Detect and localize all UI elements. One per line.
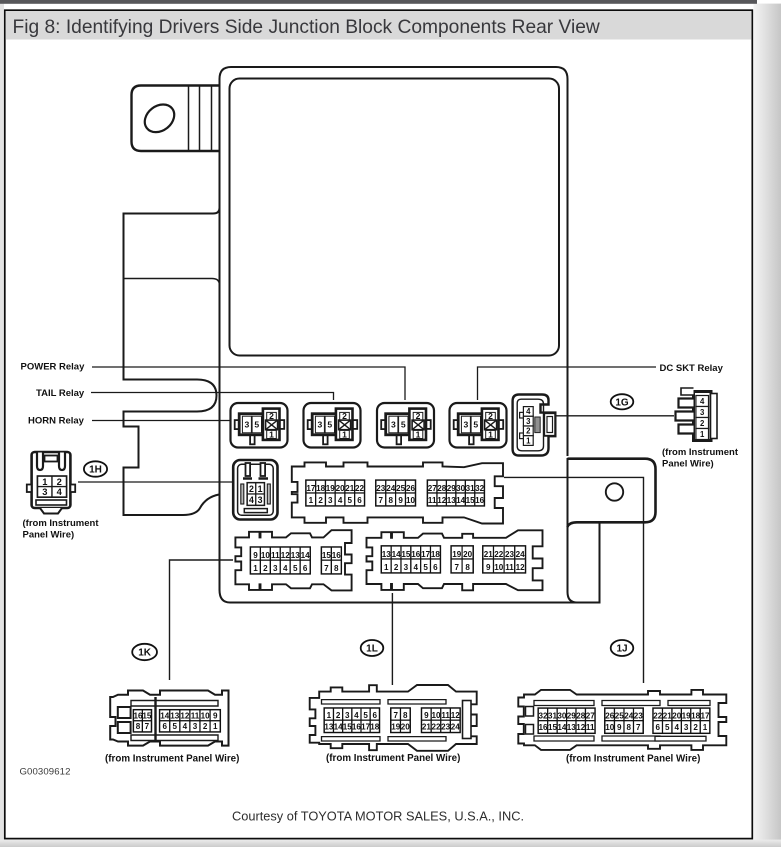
svg-text:32: 32 [538,712,548,721]
svg-text:14: 14 [557,723,567,732]
svg-text:2: 2 [693,723,698,732]
svg-text:10: 10 [605,723,615,732]
svg-text:Panel Wire): Panel Wire) [662,459,714,470]
svg-text:4: 4 [674,723,679,732]
svg-text:9: 9 [486,563,491,572]
svg-text:27: 27 [586,712,596,721]
svg-text:1: 1 [327,711,332,720]
svg-text:8: 8 [334,564,339,573]
svg-text:14: 14 [334,722,344,731]
svg-text:2: 2 [203,722,208,731]
svg-text:8: 8 [136,722,141,731]
svg-text:21: 21 [663,712,673,721]
svg-text:3: 3 [318,420,323,430]
svg-text:6: 6 [433,563,438,572]
svg-text:25: 25 [396,484,406,493]
svg-text:G00309612: G00309612 [20,766,71,777]
svg-text:10: 10 [431,711,441,720]
svg-text:2: 2 [57,476,62,487]
svg-text:23: 23 [634,712,644,721]
svg-text:13: 13 [291,551,301,560]
svg-text:2: 2 [269,411,274,421]
svg-text:Courtesy of TOYOTA MOTOR SALES: Courtesy of TOYOTA MOTOR SALES, U.S.A., … [232,809,524,824]
svg-text:18: 18 [431,550,441,559]
svg-text:26: 26 [406,484,416,493]
svg-text:4: 4 [700,397,705,406]
svg-text:Panel Wire): Panel Wire) [23,530,75,541]
svg-text:5: 5 [348,496,353,505]
svg-text:12: 12 [437,496,447,505]
svg-text:14: 14 [301,551,311,560]
svg-text:24: 24 [516,550,526,559]
svg-text:9: 9 [213,712,218,721]
svg-text:3: 3 [273,564,278,573]
svg-text:15: 15 [401,550,411,559]
svg-text:(from Instrument Panel Wire): (from Instrument Panel Wire) [326,753,460,764]
svg-text:6: 6 [357,496,362,505]
svg-text:2: 2 [394,563,399,572]
svg-text:3: 3 [193,722,198,731]
svg-text:3: 3 [684,723,689,732]
svg-text:2: 2 [416,411,421,421]
svg-text:18: 18 [691,712,701,721]
svg-text:2: 2 [488,411,493,421]
svg-text:1G: 1G [615,397,629,408]
svg-text:12: 12 [576,723,586,732]
svg-text:22: 22 [653,712,663,721]
svg-text:4: 4 [249,495,254,505]
svg-text:1L: 1L [366,644,378,655]
svg-text:22: 22 [431,722,441,731]
svg-text:26: 26 [605,712,615,721]
svg-text:3: 3 [345,711,350,720]
svg-text:10: 10 [494,563,504,572]
svg-text:1: 1 [253,564,258,573]
svg-text:24: 24 [386,484,396,493]
svg-text:HORN Relay: HORN Relay [28,416,85,427]
svg-text:21: 21 [484,550,494,559]
svg-text:28: 28 [437,484,447,493]
svg-text:(from Instrument Panel Wire): (from Instrument Panel Wire) [105,754,239,765]
svg-text:1: 1 [342,429,347,439]
svg-text:24: 24 [451,722,461,731]
svg-text:2: 2 [342,411,347,421]
svg-text:6: 6 [656,723,661,732]
svg-text:3: 3 [328,496,333,505]
svg-text:6: 6 [373,711,378,720]
svg-text:16: 16 [352,722,362,731]
svg-text:DC SKT Relay: DC SKT Relay [660,363,724,374]
svg-text:16: 16 [538,723,548,732]
svg-text:15: 15 [548,723,558,732]
svg-text:13: 13 [170,712,180,721]
svg-text:15: 15 [142,712,152,721]
svg-text:31: 31 [466,484,476,493]
svg-text:7: 7 [393,711,398,720]
svg-text:3: 3 [404,563,409,572]
svg-text:2: 2 [249,484,254,494]
svg-text:11: 11 [505,563,514,572]
svg-text:14: 14 [392,550,402,559]
svg-text:19: 19 [391,722,401,731]
svg-text:Fig 8: Identifying Drivers Sid: Fig 8: Identifying Drivers Side Junction… [13,17,600,38]
svg-text:9: 9 [617,723,622,732]
svg-text:30: 30 [456,484,466,493]
svg-text:13: 13 [324,722,334,731]
svg-text:8: 8 [403,711,408,720]
svg-text:1: 1 [416,429,421,439]
svg-text:22: 22 [355,484,365,493]
svg-text:15: 15 [322,551,332,560]
svg-text:11: 11 [586,723,595,732]
svg-text:2: 2 [318,496,323,505]
svg-text:3: 3 [258,495,263,505]
svg-text:14: 14 [160,712,170,721]
svg-text:2: 2 [336,711,341,720]
svg-text:3: 3 [42,486,47,497]
svg-text:29: 29 [567,712,577,721]
svg-text:31: 31 [548,712,558,721]
svg-text:3: 3 [700,408,705,417]
svg-text:17: 17 [700,712,710,721]
svg-text:23: 23 [441,722,451,731]
svg-text:11: 11 [271,551,280,560]
svg-text:(from Instrument: (from Instrument [23,518,100,529]
svg-text:1: 1 [703,723,708,732]
svg-text:7: 7 [379,496,384,505]
svg-text:23: 23 [376,484,386,493]
svg-text:12: 12 [516,563,526,572]
svg-text:1H: 1H [89,465,102,476]
svg-text:7: 7 [324,564,329,573]
svg-text:2: 2 [526,427,531,436]
svg-text:7: 7 [454,563,459,572]
svg-text:5: 5 [293,564,298,573]
svg-text:4: 4 [183,722,188,731]
svg-text:5: 5 [423,563,428,572]
svg-text:4: 4 [338,496,343,505]
svg-text:17: 17 [361,722,371,731]
svg-text:5: 5 [254,420,259,430]
svg-text:8: 8 [465,563,470,572]
svg-text:8: 8 [627,723,632,732]
svg-text:5: 5 [665,723,670,732]
svg-text:7: 7 [636,723,641,732]
svg-text:25: 25 [615,712,625,721]
svg-text:12: 12 [180,712,190,721]
svg-text:1: 1 [700,430,705,439]
svg-text:1K: 1K [138,648,152,659]
svg-text:2: 2 [263,564,268,573]
svg-text:11: 11 [191,712,200,721]
svg-text:29: 29 [447,484,457,493]
svg-text:1: 1 [384,563,389,572]
svg-text:4: 4 [57,486,63,497]
svg-text:18: 18 [370,722,380,731]
svg-text:4: 4 [283,564,288,573]
svg-text:1: 1 [526,436,531,445]
svg-text:10: 10 [261,551,271,560]
svg-text:20: 20 [463,550,473,559]
svg-text:10: 10 [406,496,416,505]
svg-text:14: 14 [456,496,466,505]
svg-text:1J: 1J [616,644,627,655]
svg-text:7: 7 [145,722,150,731]
svg-text:18: 18 [316,484,326,493]
svg-text:4: 4 [526,407,531,416]
svg-text:9: 9 [398,496,403,505]
svg-text:20: 20 [401,722,411,731]
svg-text:13: 13 [382,550,392,559]
svg-text:20: 20 [336,484,346,493]
svg-text:20: 20 [672,712,682,721]
svg-text:4: 4 [414,563,419,572]
svg-text:POWER Relay: POWER Relay [21,362,86,373]
svg-text:24: 24 [624,712,634,721]
svg-text:TAIL Relay: TAIL Relay [36,388,85,399]
svg-text:3: 3 [391,420,396,430]
svg-text:5: 5 [173,722,178,731]
svg-text:3: 3 [526,417,531,426]
svg-text:10: 10 [201,712,211,721]
svg-text:11: 11 [441,711,450,720]
svg-text:3: 3 [464,420,469,430]
svg-text:21: 21 [422,722,432,731]
svg-text:19: 19 [452,550,462,559]
svg-text:9: 9 [424,711,429,720]
svg-text:22: 22 [494,550,504,559]
svg-text:1: 1 [258,484,263,494]
svg-text:12: 12 [281,551,291,560]
svg-text:3: 3 [245,420,250,430]
svg-text:30: 30 [557,712,567,721]
svg-text:16: 16 [411,550,421,559]
svg-text:9: 9 [253,551,258,560]
svg-text:1: 1 [488,429,493,439]
svg-text:15: 15 [466,496,476,505]
svg-text:4: 4 [354,711,359,720]
svg-text:27: 27 [428,484,438,493]
svg-text:16: 16 [475,496,485,505]
svg-text:17: 17 [306,484,316,493]
svg-text:28: 28 [576,712,586,721]
svg-text:6: 6 [303,564,308,573]
svg-text:15: 15 [343,722,353,731]
svg-text:8: 8 [388,496,393,505]
svg-text:32: 32 [475,484,485,493]
svg-text:11: 11 [428,496,437,505]
svg-text:1: 1 [309,496,314,505]
svg-text:5: 5 [401,420,406,430]
svg-text:12: 12 [451,711,461,720]
svg-text:1: 1 [42,476,47,487]
svg-text:13: 13 [567,723,577,732]
svg-text:1: 1 [213,722,218,731]
svg-text:21: 21 [345,484,355,493]
svg-text:19: 19 [682,712,692,721]
svg-text:5: 5 [473,420,478,430]
svg-text:17: 17 [421,550,431,559]
svg-text:13: 13 [447,496,457,505]
svg-text:(from Instrument: (from Instrument [662,447,739,458]
svg-text:19: 19 [326,484,336,493]
svg-text:1: 1 [269,429,274,439]
svg-text:5: 5 [327,420,332,430]
svg-text:23: 23 [505,550,515,559]
svg-text:(from Instrument Panel Wire): (from Instrument Panel Wire) [566,754,700,765]
svg-text:2: 2 [700,419,705,428]
svg-text:16: 16 [332,551,342,560]
svg-text:5: 5 [363,711,368,720]
svg-text:6: 6 [162,722,167,731]
